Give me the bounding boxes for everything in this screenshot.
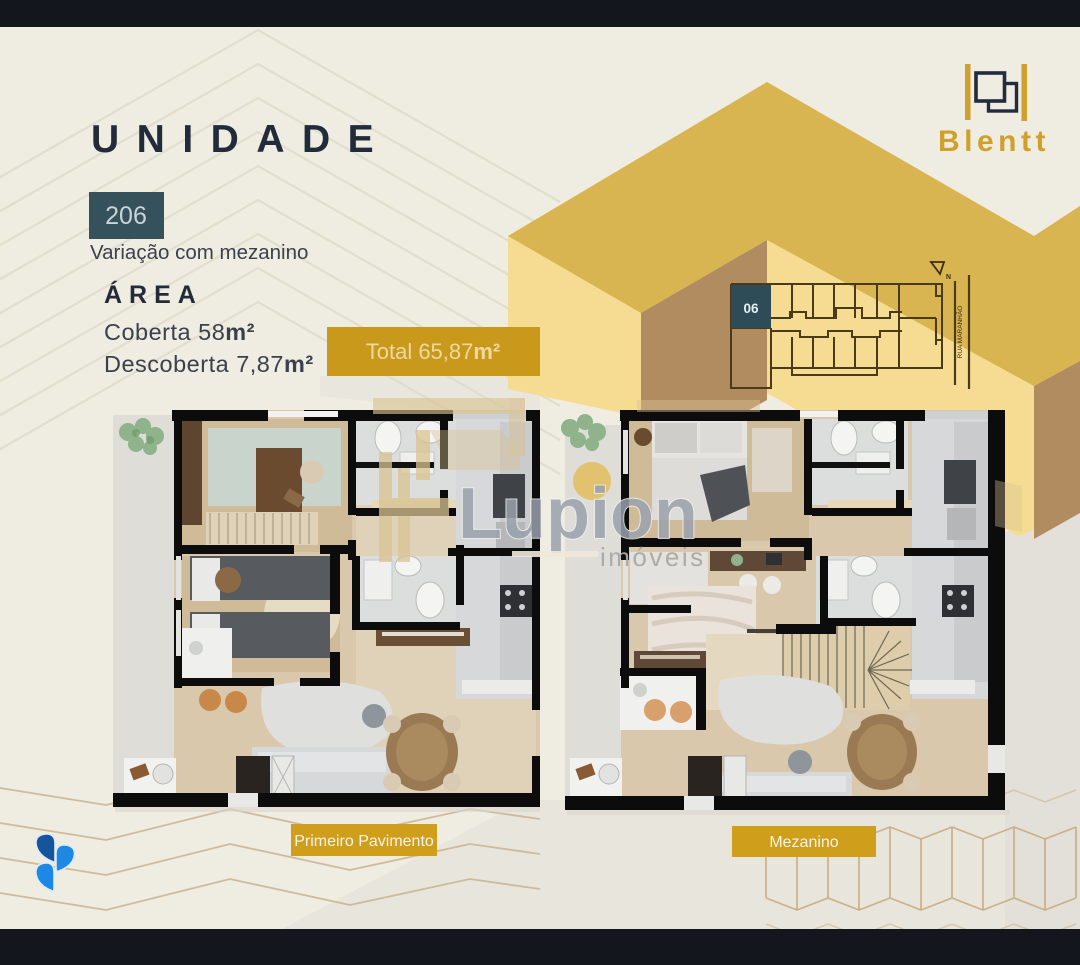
svg-text:N: N [946, 274, 951, 281]
svg-text:206: 206 [105, 202, 147, 230]
svg-text:Mezanino: Mezanino [769, 834, 838, 851]
svg-text:Descoberta 7,87m²: Descoberta 7,87m² [104, 351, 314, 377]
svg-text:RUA MARANHÃO: RUA MARANHÃO [955, 306, 964, 359]
svg-text:ÁREA: ÁREA [104, 280, 203, 309]
svg-text:Total 65,87m²: Total 65,87m² [366, 339, 501, 364]
svg-text:UNIDADE: UNIDADE [91, 118, 391, 161]
svg-text:imóveis: imóveis [600, 542, 706, 572]
svg-text:Blentt: Blentt [938, 125, 1050, 158]
svg-text:Variação com mezanino: Variação com mezanino [90, 241, 308, 264]
svg-text:Primeiro Pavimento: Primeiro Pavimento [294, 833, 434, 850]
svg-text:06: 06 [743, 301, 759, 316]
svg-text:Coberta 58m²: Coberta 58m² [104, 319, 255, 345]
